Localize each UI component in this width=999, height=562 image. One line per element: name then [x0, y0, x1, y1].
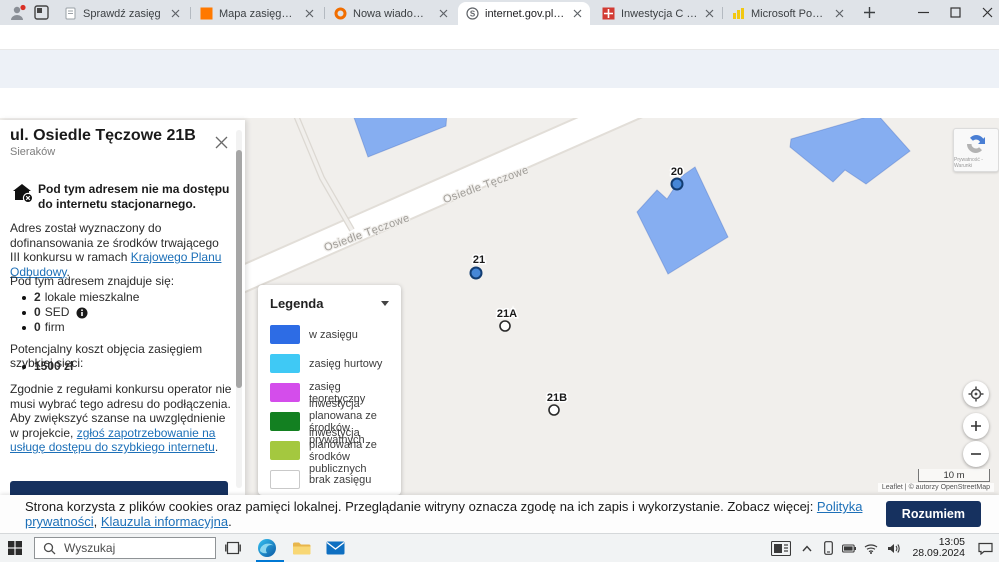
start-button[interactable]	[0, 534, 30, 562]
svg-text:21A: 21A	[497, 308, 517, 320]
no-access-text: Pod tym adresem nie ma dostępu do intern…	[38, 182, 234, 212]
taskbar-search-input[interactable]: Wyszukaj	[34, 537, 216, 559]
new-tab-button[interactable]	[862, 5, 877, 25]
swatch-publiczne	[270, 441, 300, 460]
mail-icon	[326, 541, 345, 555]
rules-paragraph: Zgodnie z regułami konkursu operator nie…	[10, 382, 232, 455]
power-bi-icon	[732, 7, 745, 20]
list-item-sed: 0SED	[22, 305, 88, 320]
map-marker-20[interactable]: 20	[671, 166, 683, 190]
window-maximize-button[interactable]	[940, 0, 970, 24]
tab-mapa-orange[interactable]: Mapa zasięgu Orange | Ora	[192, 2, 322, 25]
svg-text:S: S	[470, 9, 476, 18]
tab-label: Sprawdź zasięg	[83, 8, 164, 20]
workspaces-icon[interactable]	[34, 5, 49, 20]
taskbar: Wyszukaj	[0, 533, 999, 562]
tab-close-icon[interactable]	[570, 7, 584, 21]
tab-label: internet.gov.pl - Mapa	[485, 8, 566, 20]
tab-close-icon[interactable]	[302, 7, 316, 21]
map-attribution: Leaflet | © autorzy OpenStreetMap	[878, 483, 994, 492]
tab-label: Inwestycja C 1.1.1 Zapewni	[621, 8, 698, 20]
tab-sprawdz-zasieg[interactable]: Sprawdź zasięg	[56, 2, 188, 25]
tab-close-icon[interactable]	[832, 7, 846, 21]
tab-internet-gov-pl[interactable]: S internet.gov.pl - Mapa	[458, 2, 590, 25]
swatch-prywatne	[270, 412, 300, 431]
swatch-teoretyczny	[270, 383, 300, 402]
legend-card: Legenda w zasięgu zasięg hurtowy zasięg …	[258, 285, 401, 495]
phone-link-icon[interactable]	[818, 534, 838, 562]
tab-inwestycja[interactable]: Inwestycja C 1.1.1 Zapewni	[594, 2, 722, 25]
zoom-out-button[interactable]	[963, 441, 989, 467]
map-scale: 10 m	[918, 469, 990, 482]
address-panel: ul. Osiedle Tęczowe 21B Sieraków Pod tym…	[0, 120, 245, 495]
svg-text:21B: 21B	[547, 392, 567, 404]
recaptcha-terms: Prywatność - Warunki	[954, 157, 998, 169]
search-icon	[43, 542, 56, 555]
cookie-accept-button[interactable]: Rozumiem	[886, 501, 981, 527]
bullet	[22, 296, 26, 300]
notification-icon	[978, 542, 993, 555]
taskbar-clock[interactable]: 13:05 28.09.2024	[912, 537, 965, 559]
task-view-button[interactable]	[216, 534, 250, 562]
building-polygon	[790, 118, 910, 184]
orange-ring-icon	[334, 7, 347, 20]
window-close-button[interactable]	[972, 0, 999, 24]
no-internet-house-icon	[10, 180, 34, 204]
document-icon	[64, 7, 77, 20]
cost-value-item: 1500 zł	[22, 359, 73, 374]
information-clause-link[interactable]: Klauzula informacyjna	[101, 514, 228, 529]
bullet	[22, 311, 26, 315]
locate-button[interactable]	[963, 381, 989, 407]
panel-scrollbar-thumb[interactable]	[236, 150, 242, 388]
crosshair-icon	[968, 386, 984, 402]
taskbar-edge-button[interactable]	[250, 534, 284, 562]
orange-brand-icon	[200, 7, 213, 20]
funding-paragraph: Adres został wyznaczony do dofinansowani…	[10, 221, 232, 279]
folder-icon	[292, 541, 311, 556]
screen: Sprawdź zasięg Mapa zasięgu Orange | Ora…	[0, 0, 999, 562]
tab-label: Nowa wiadomość - Nasz O	[353, 8, 432, 20]
bullet	[22, 365, 26, 369]
svg-text:21: 21	[473, 254, 485, 266]
address-city: Sieraków	[10, 146, 55, 158]
swatch-hurtowy	[270, 354, 300, 373]
clock-date: 28.09.2024	[912, 548, 965, 559]
swatch-w-zasiegu	[270, 325, 300, 344]
legend-item: w zasięgu	[270, 320, 389, 349]
volume-icon[interactable]	[882, 534, 904, 562]
tab-close-icon[interactable]	[436, 7, 450, 21]
contains-label: Pod tym adresem znajduje się:	[10, 274, 174, 288]
edge-icon	[257, 538, 277, 558]
tab-separator	[324, 7, 325, 19]
minus-icon	[970, 448, 982, 460]
s-badge-icon: S	[466, 7, 479, 20]
window-minimize-button[interactable]	[908, 0, 938, 24]
info-icon[interactable]	[76, 307, 88, 319]
svg-text:20: 20	[671, 166, 683, 178]
taskbar-mail-button[interactable]	[318, 534, 352, 562]
list-item-firmy: 0firm	[22, 320, 65, 335]
list-item-lokale: 2lokale mieszkalne	[22, 290, 139, 305]
site-header: internet.gov.pl Mapa Statystyki Masz pyt…	[0, 50, 999, 88]
address-title: ul. Osiedle Tęczowe 21B	[10, 127, 210, 145]
browser-address-row: https://internet.gov.pl/map/?center=1788…	[0, 25, 999, 50]
search-placeholder: Wyszukaj	[64, 541, 115, 555]
bullet	[22, 326, 26, 330]
zoom-in-button[interactable]	[963, 413, 989, 439]
cookie-banner: Strona korzysta z plików cookies oraz pa…	[0, 495, 999, 533]
map-marker-21B[interactable]: 21B	[547, 392, 567, 415]
legend-item: zasięg hurtowy	[270, 349, 389, 378]
legend-item: inwestycja planowana ze środków publiczn…	[270, 436, 389, 465]
chevron-down-icon	[381, 301, 389, 306]
wifi-icon[interactable]	[860, 534, 882, 562]
tab-separator	[722, 7, 723, 19]
browser-profile-icon[interactable]	[8, 4, 28, 22]
tab-label: Mapa zasięgu Orange | Ora	[219, 8, 298, 20]
building-polygon	[352, 118, 447, 157]
panel-close-button[interactable]	[212, 133, 230, 151]
recaptcha-badge[interactable]: Prywatność - Warunki	[953, 128, 999, 172]
recaptcha-icon	[964, 132, 988, 156]
plus-icon	[970, 420, 982, 432]
legend-title: Legenda	[270, 296, 323, 311]
tab-nowa-wiadomosc[interactable]: Nowa wiadomość - Nasz O	[326, 2, 456, 25]
cookie-text: Strona korzysta z plików cookies oraz pa…	[25, 499, 874, 529]
actions-band: Twoje adresy Zgłoszenia	[0, 88, 999, 118]
red-grid-icon	[602, 7, 615, 20]
legend-header[interactable]: Legenda	[270, 294, 389, 312]
task-view-icon	[225, 541, 241, 555]
tab-close-icon[interactable]	[702, 7, 716, 21]
map-marker-21A[interactable]: 21A	[497, 308, 517, 331]
tray-expand-chevron-icon[interactable]	[796, 534, 818, 562]
tab-separator	[190, 7, 191, 19]
taskbar-file-explorer-button[interactable]	[284, 534, 318, 562]
tab-close-icon[interactable]	[168, 7, 182, 21]
notification-center-button[interactable]	[971, 534, 999, 562]
swatch-brak	[270, 470, 300, 489]
windows-logo-icon	[8, 541, 22, 555]
tab-label: Microsoft Power BI	[751, 8, 828, 20]
tab-power-bi[interactable]: Microsoft Power BI	[724, 2, 852, 25]
widgets-tray-icon[interactable]	[766, 534, 796, 562]
map-marker-21[interactable]: 21	[471, 254, 486, 279]
battery-icon[interactable]	[838, 534, 860, 562]
browser-tab-strip: Sprawdź zasięg Mapa zasięgu Orange | Ora…	[0, 0, 999, 25]
